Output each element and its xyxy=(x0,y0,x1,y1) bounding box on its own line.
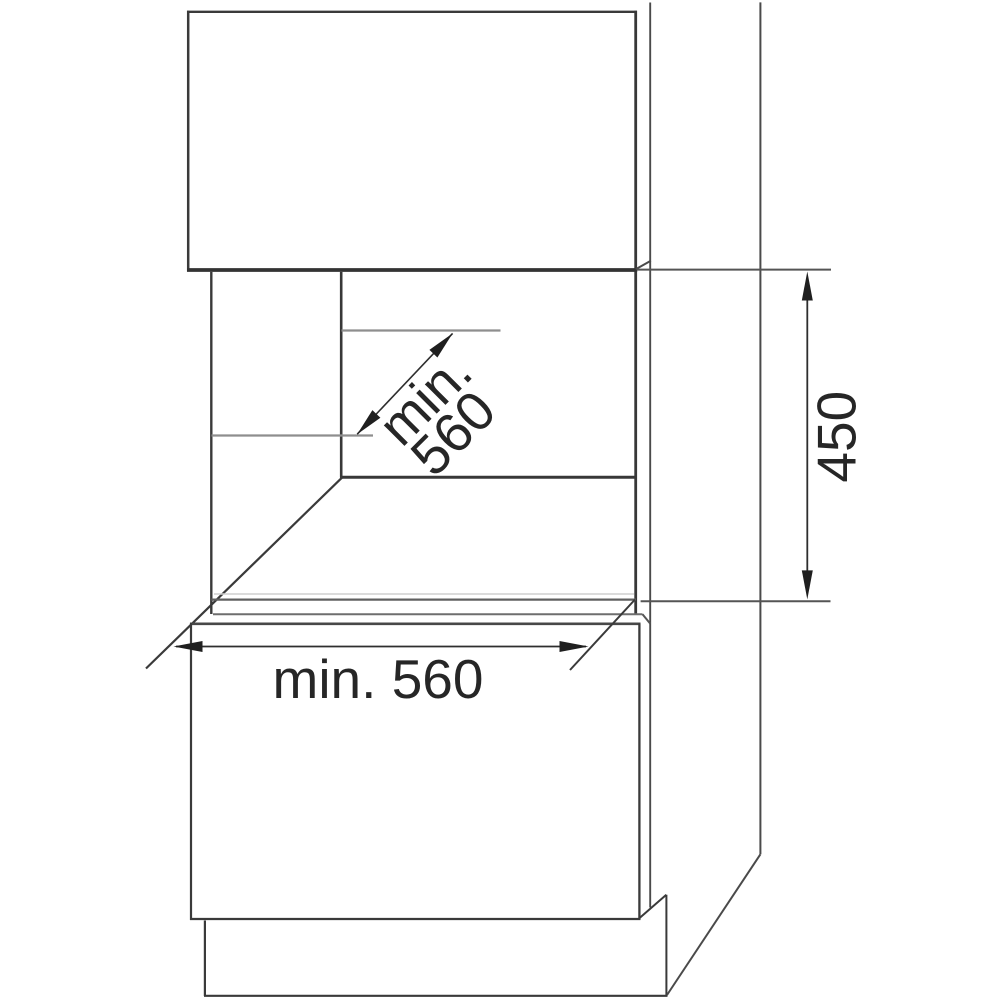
svg-text:450: 450 xyxy=(806,391,868,483)
svg-text:min. 560: min. 560 xyxy=(273,648,484,710)
